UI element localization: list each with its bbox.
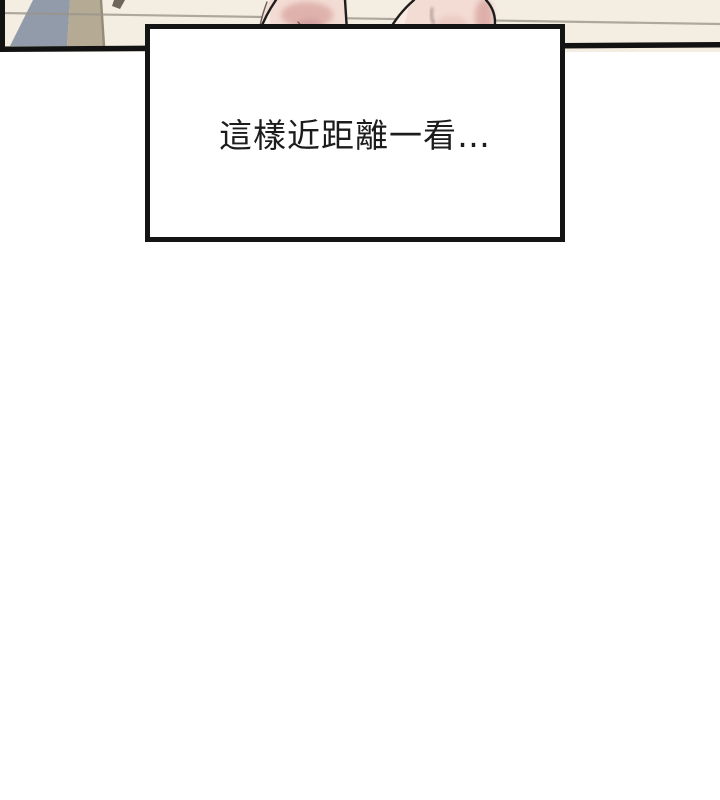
tan-pillar-shape [67, 0, 104, 46]
caption-box: 這樣近距離一看… [145, 24, 565, 242]
caption-text: 這樣近距離一看… [219, 109, 491, 157]
comic-page: 這樣近距離一看… [0, 0, 720, 800]
panel-border-left [0, 0, 5, 52]
